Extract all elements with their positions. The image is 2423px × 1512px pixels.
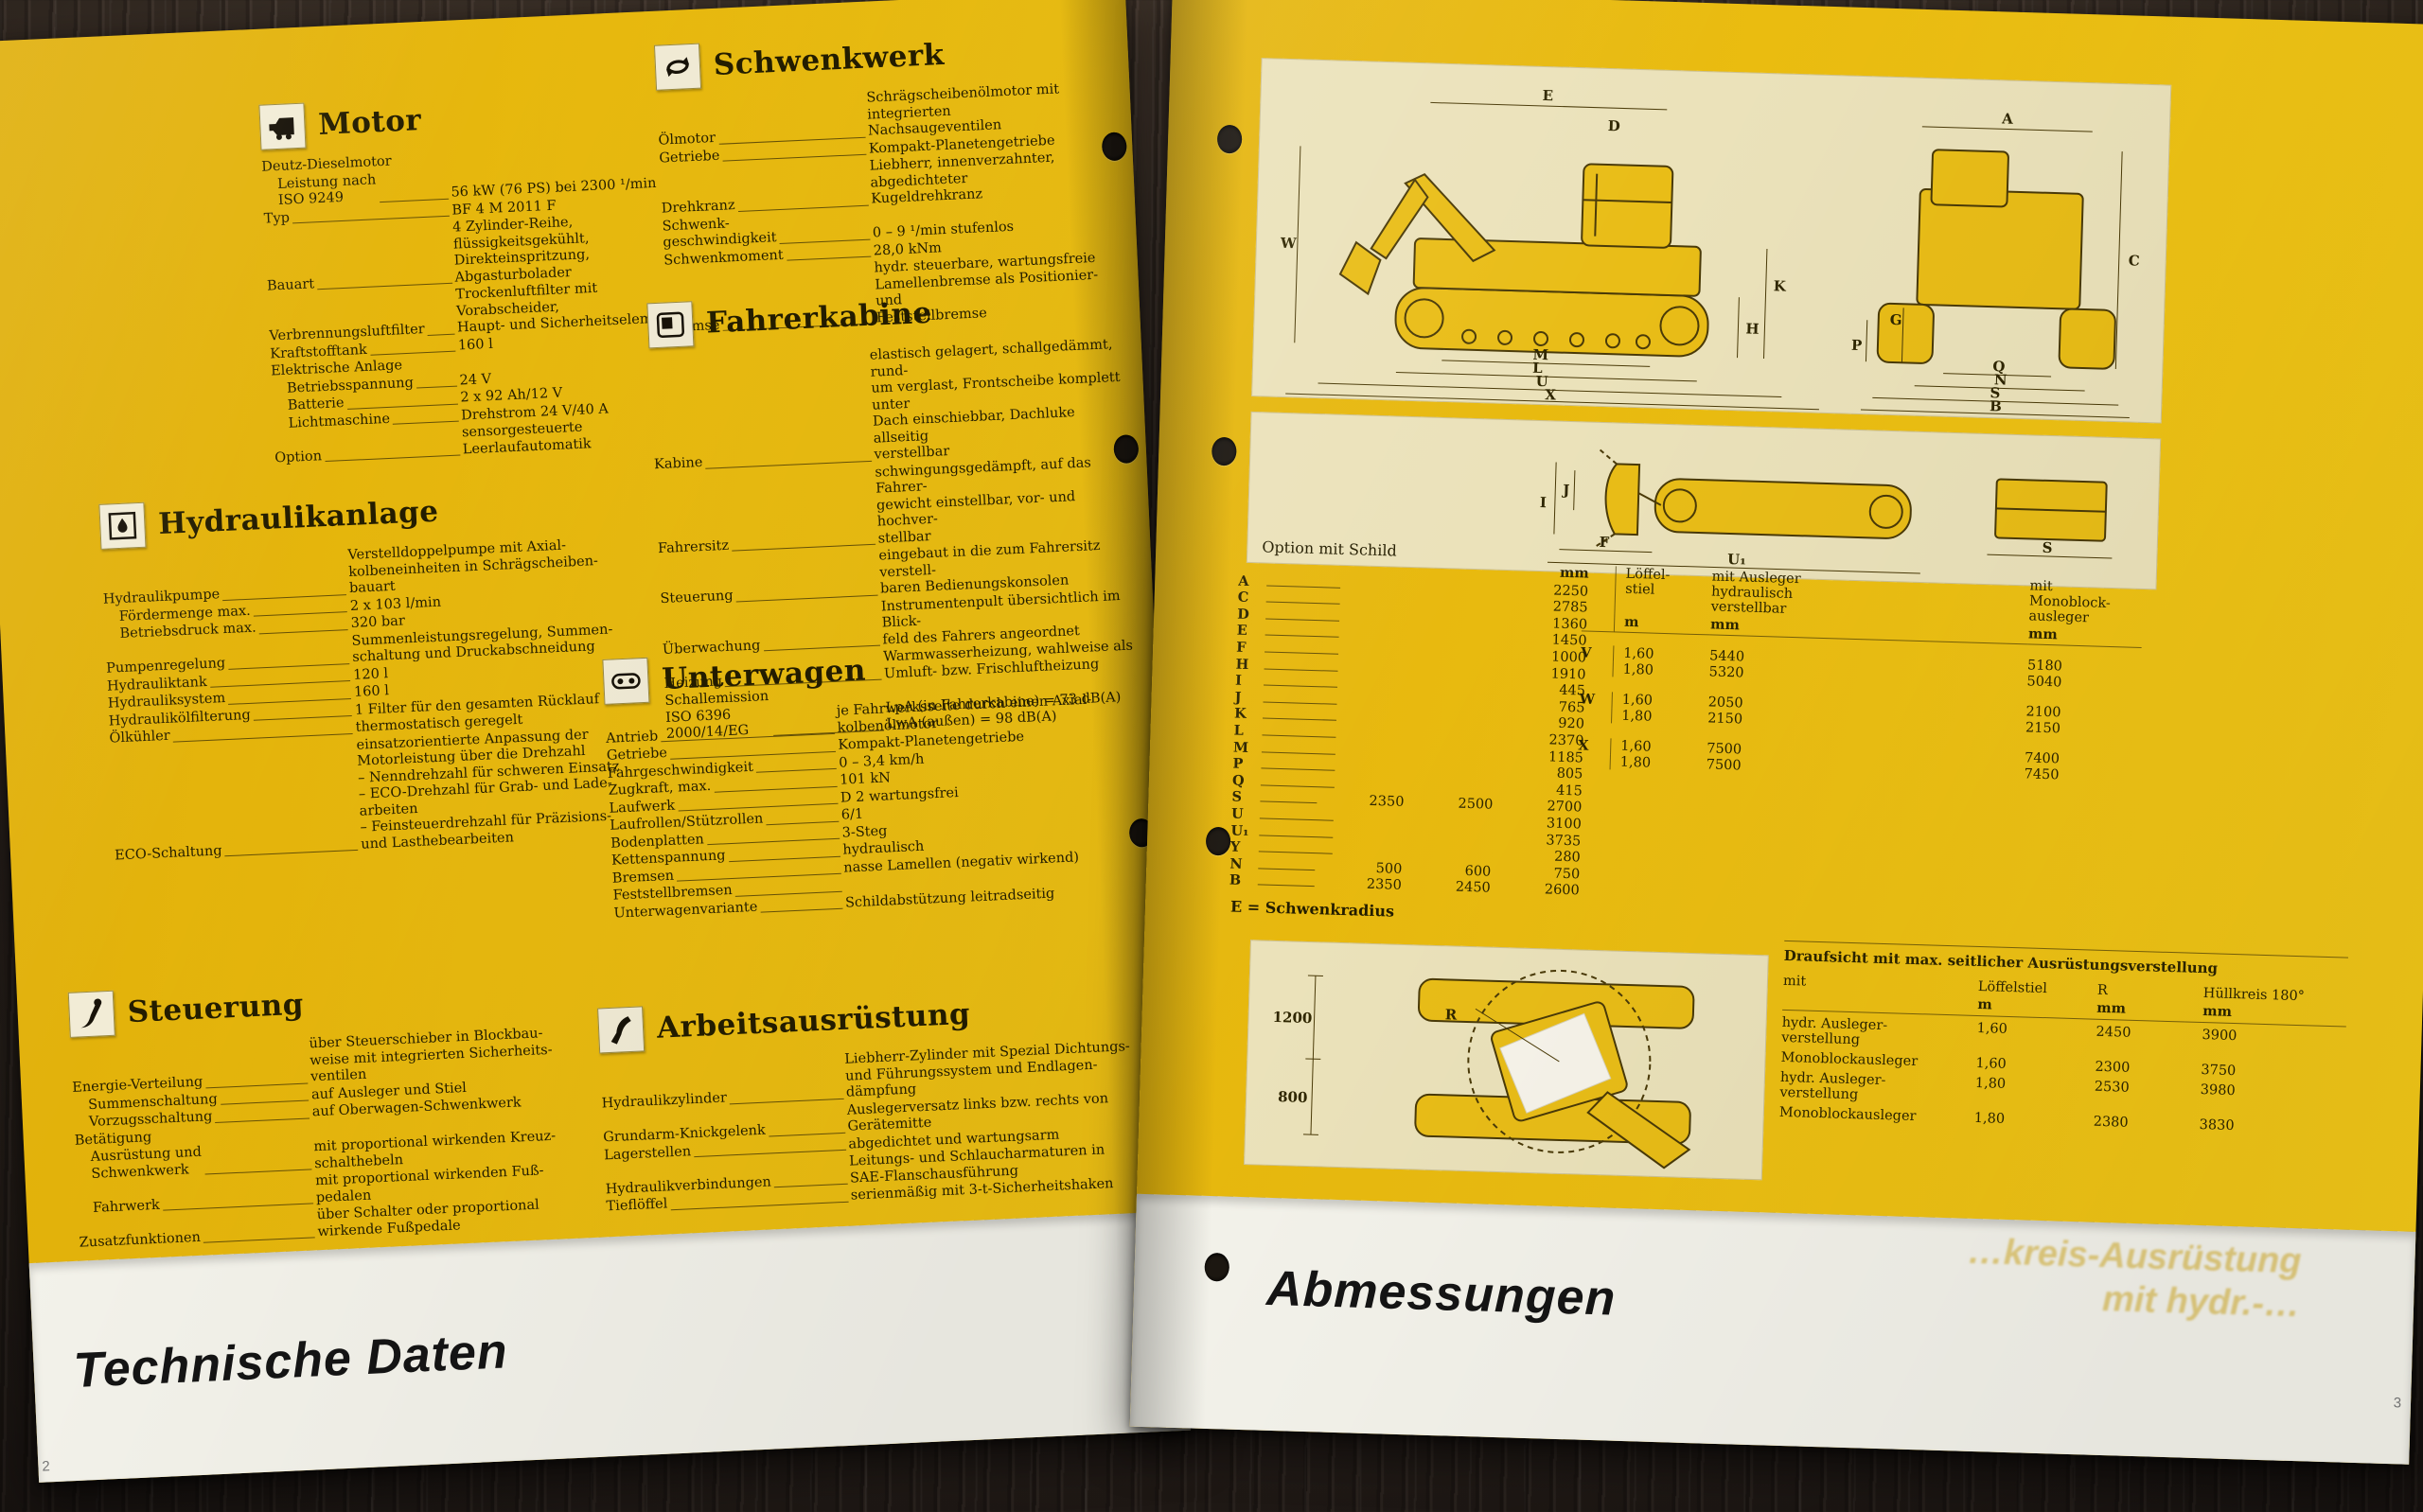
topview-table-cell: 1,60 xyxy=(1976,1016,2096,1055)
diagram-dimension-label: A xyxy=(2001,110,2014,127)
dimension-value: 750 xyxy=(1496,865,1585,883)
boom-variant-cell xyxy=(1582,612,1615,632)
spec-label: ECO-Schaltung xyxy=(115,843,222,865)
leader-line xyxy=(769,1132,845,1136)
spec-label: Tieflöffel xyxy=(606,1196,668,1215)
dimension-letter: N xyxy=(1229,855,1258,872)
leader-line xyxy=(225,850,359,856)
dimension-letter: Y xyxy=(1230,839,1259,856)
dimension-value: 2370 xyxy=(1500,731,1589,749)
leader-line xyxy=(1258,885,1315,888)
section-arbeitsausruestung: ArbeitsausrüstungHydraulikzylinderLiebhe… xyxy=(597,984,1138,1216)
leader-line xyxy=(1263,718,1336,721)
spec-label: Zusatzfunktionen xyxy=(79,1229,201,1251)
leader-line xyxy=(380,198,449,202)
swing-arrows-icon xyxy=(654,44,701,91)
leader-line xyxy=(1265,618,1339,621)
dimension-letter: I xyxy=(1235,673,1264,690)
diagram-dimension-label: D xyxy=(1607,117,1620,134)
diagram-dimension-label: E xyxy=(1542,87,1553,104)
topview-table-cell: 3980 xyxy=(2200,1078,2344,1116)
diagram-dimension-label: H xyxy=(1745,320,1760,337)
leader-line xyxy=(259,629,348,634)
dimension-value: 500 xyxy=(1318,859,1407,877)
spec-label: Getriebe xyxy=(607,746,668,765)
leader-line xyxy=(761,908,843,913)
left-page: MotorDeutz-DieselmotorLeistung nach ISO … xyxy=(0,0,1191,1483)
track-link-icon xyxy=(602,658,649,705)
dimensions-diagram-box: EDWHKMLUXACGPQNSB xyxy=(1251,58,2171,423)
dimension-value: 2350 xyxy=(1320,793,1409,811)
spec-label: Leistung nach ISO 9249 xyxy=(262,172,378,210)
diagram-dimension-label: C xyxy=(2128,252,2140,269)
leader-line xyxy=(671,1201,849,1210)
dimension-value: 1450 xyxy=(1503,631,1592,649)
diagram-dimension-label: W xyxy=(1280,235,1299,253)
leader-line xyxy=(221,1099,309,1104)
spec-row: ECO-Schaltungeinsatzorientierte Anpassun… xyxy=(110,724,650,864)
engine-icon xyxy=(258,103,306,150)
diagram-dimension-label: F xyxy=(1599,534,1610,551)
leader-line xyxy=(1260,801,1317,804)
dimension-value: 415 xyxy=(1499,782,1588,800)
leader-line xyxy=(1264,685,1337,688)
leader-line xyxy=(774,1184,847,1188)
topview-table-cell: 1,80 xyxy=(1974,1106,2095,1130)
leader-line xyxy=(780,238,870,243)
dimension-value: 445 xyxy=(1502,681,1591,699)
dimension-letter: F xyxy=(1236,640,1265,657)
right-footer-band: …kreis-Ausrüstung mit hydr.-… Abmessunge… xyxy=(1130,1194,2416,1465)
leader-line xyxy=(1259,835,1333,837)
leader-line xyxy=(1260,818,1334,820)
spec-value: schwingungsgedämpft, auf das Fahrer- gew… xyxy=(875,453,1137,548)
right-page: EDWHKMLUXACGPQNSB JIFU₁S Option mit Schi… xyxy=(1130,0,2423,1465)
topview-table-cell: 2450 xyxy=(2096,1020,2202,1058)
topview-table-cell: 2530 xyxy=(2094,1075,2201,1113)
boom-variant-cell: m xyxy=(1614,613,1711,635)
leader-line xyxy=(1261,768,1335,771)
section-title: Hydraulikanlage xyxy=(158,495,440,541)
dimension-letter: Q xyxy=(1232,772,1261,789)
dimension-letter: E xyxy=(1236,623,1265,640)
topview-table: Draufsicht mit max. seitlicher Ausrüstun… xyxy=(1779,941,2348,1137)
page-number-right: 3 xyxy=(2393,1395,2401,1411)
boom-variant-table: Löffel- stielmit Ausleger hydraulisch ve… xyxy=(1578,565,2151,785)
boom-variant-cell: X xyxy=(1578,737,1610,754)
leader-line xyxy=(325,455,460,462)
diagram-dimension-label: U₁ xyxy=(1727,551,1746,569)
showthrough-text: …kreis-Ausrüstung mit hydr.-… xyxy=(1524,1217,2302,1327)
spec-label: Batterie xyxy=(272,396,344,415)
leader-line xyxy=(1266,602,1340,605)
section-title: Fahrerkabine xyxy=(706,296,933,341)
section-unterwagen: UnterwagenAntriebje Fahrwerksseite durch… xyxy=(602,637,1117,923)
dimension-letter: L xyxy=(1233,722,1262,739)
diagram-dimension-label: G xyxy=(1890,311,1902,328)
dimension-letter: J xyxy=(1234,689,1263,706)
boom-variant-cell xyxy=(1578,753,1610,769)
boom-variant-cell xyxy=(1582,565,1615,613)
diagram-dimension-label: B xyxy=(1990,397,2002,414)
dimension-letter: H xyxy=(1235,656,1264,673)
leader-line xyxy=(1258,868,1315,870)
dimension-value: 2500 xyxy=(1409,795,1498,813)
dimension-letter: S xyxy=(1231,789,1260,806)
leader-line xyxy=(1265,668,1338,671)
dimension-value: 2450 xyxy=(1407,878,1496,896)
spec-label: Antrieb xyxy=(606,729,659,747)
leader-line xyxy=(1262,751,1335,754)
spec-row: Kabineelastisch gelagert, schallgedämmt,… xyxy=(649,336,1133,473)
topview-table-cell: 3900 xyxy=(2202,1023,2346,1062)
dimension-letter: D xyxy=(1237,606,1265,623)
dimension-value: 920 xyxy=(1501,714,1590,732)
page-heading-right: Abmessungen xyxy=(1265,1260,1617,1327)
topview-table-cell: 3830 xyxy=(2199,1113,2343,1137)
boom-icon xyxy=(597,1006,645,1053)
spec-label: Ölmotor xyxy=(658,131,716,149)
leader-line xyxy=(756,768,837,773)
excavator-side-rear-diagram: EDWHKMLUXACGPQNSB xyxy=(1251,58,2171,423)
topview-table-cell: hydr. Ausleger- verstellung xyxy=(1779,1065,1975,1106)
cab-icon xyxy=(646,301,694,348)
dimension-value: 765 xyxy=(1501,698,1590,716)
spec-label: Fahrersitz xyxy=(658,537,730,557)
punch-hole xyxy=(1206,827,1231,856)
leader-line xyxy=(787,256,871,261)
dimension-value: 805 xyxy=(1499,765,1588,782)
diagram-dimension-label: X xyxy=(1545,386,1557,403)
section-hydraulikanlage: HydraulikanlageHydraulikpumpeVerstelldop… xyxy=(98,480,650,864)
dimension-value: 3100 xyxy=(1498,815,1587,833)
spec-label: Schwenk- geschwindigkeit xyxy=(662,214,777,252)
dimension-value: 280 xyxy=(1497,848,1586,866)
dimension-value: 1910 xyxy=(1502,665,1591,683)
dimension-table: mm A2250C2785D1360E1450F1000H1910I445J76… xyxy=(1229,555,1595,899)
boom-variant-cell xyxy=(1580,660,1612,677)
section-title: Motor xyxy=(318,103,422,142)
dimension-value: 600 xyxy=(1407,862,1496,880)
boom-variant-cell: 1,80 xyxy=(1610,754,1707,772)
diagram-dimension-label: 1200 xyxy=(1272,1009,1312,1027)
dimension-value: 1000 xyxy=(1503,648,1592,666)
topview-diagram-box: 1200800R xyxy=(1244,940,1769,1180)
photo-background: MotorDeutz-DieselmotorLeistung nach ISO … xyxy=(0,0,2423,1512)
spec-label: Steuerung xyxy=(660,589,734,608)
boom-variant-cell: mm xyxy=(2028,625,2143,648)
page-heading-left: Technische Daten xyxy=(73,1323,509,1399)
leader-line xyxy=(203,1237,315,1242)
diagram-dimension-label: J xyxy=(1561,482,1570,499)
section-motor: MotorDeutz-DieselmotorLeistung nach ISO … xyxy=(258,86,683,466)
leader-line xyxy=(1262,734,1335,737)
boom-variant-cell xyxy=(1579,707,1611,723)
leader-line xyxy=(393,421,458,425)
dimension-value: 2600 xyxy=(1496,881,1585,899)
page-number-left: 2 xyxy=(42,1458,50,1474)
leader-line xyxy=(1266,585,1340,588)
leader-line xyxy=(767,820,840,824)
leader-line xyxy=(1265,635,1339,638)
section-title: Schwenkwerk xyxy=(713,38,945,82)
diagram-dimension-label: S xyxy=(2042,539,2052,556)
spec-label: Ausrüstung und Schwenkwerk xyxy=(75,1145,203,1184)
dimension-letter: A xyxy=(1238,572,1266,589)
dimension-letter: U₁ xyxy=(1230,822,1259,839)
hydraulic-pump-icon xyxy=(98,502,146,550)
diagram-dimension-label: P xyxy=(1851,337,1863,354)
punch-hole xyxy=(1211,437,1237,466)
dimension-value: 1185 xyxy=(1500,747,1589,765)
spec-label: Option xyxy=(274,448,322,467)
spec-label: Bremsen xyxy=(611,868,674,887)
section-title: Steuerung xyxy=(127,988,305,1029)
spec-label: Laufwerk xyxy=(609,798,675,818)
spec-label: Getriebe xyxy=(659,148,720,167)
swing-radius-note: E = Schwenkradius xyxy=(1230,898,1395,921)
boom-variant-cell: Löffel- stiel xyxy=(1614,566,1711,616)
boom-variant-cell: V xyxy=(1581,644,1613,661)
spec-label: Bauart xyxy=(267,276,315,295)
diagram-dimension-label: K xyxy=(1774,277,1788,294)
leader-line xyxy=(1259,851,1333,853)
dimension-letter: B xyxy=(1229,872,1258,889)
leader-line xyxy=(416,386,457,389)
dimension-value: 2250 xyxy=(1505,582,1594,600)
control-lever-icon xyxy=(68,991,115,1038)
diagram-dimension-label: I xyxy=(1540,494,1548,511)
dimension-value: 2350 xyxy=(1318,876,1407,894)
topview-table-cell: 1,80 xyxy=(1974,1071,2095,1110)
boom-variant-cell: W xyxy=(1579,691,1611,708)
boom-variant-cell: 1,80 xyxy=(1612,661,1708,679)
leader-line xyxy=(1261,784,1335,787)
dimension-value: 3735 xyxy=(1497,831,1586,849)
spec-value: 4 Zylinder-Reihe, flüssigkeitsgekühlt, D… xyxy=(452,210,676,287)
dimension-letter: C xyxy=(1238,589,1266,607)
boom-variant-cell: 2150 xyxy=(2025,720,2139,739)
boom-variant-cell: mit Monoblock- ausleger xyxy=(2028,578,2143,629)
leader-line xyxy=(1263,701,1336,704)
dimension-value: 1360 xyxy=(1504,615,1593,633)
diagram-dimension-label: R xyxy=(1445,1006,1459,1023)
spec-label: Kabine xyxy=(654,455,703,474)
spec-label: Ölkühler xyxy=(109,729,170,747)
dimension-value: 2785 xyxy=(1504,598,1593,616)
dimension-value: 2700 xyxy=(1498,798,1587,816)
section-steuerung: SteuerungEnergie-Verteilungüber Steuersc… xyxy=(68,969,598,1252)
topview-table-cell: 2380 xyxy=(2093,1110,2200,1133)
boom-variant-cell: 1,80 xyxy=(1611,708,1707,726)
leader-line xyxy=(1265,651,1338,654)
section-title: Arbeitsausrüstung xyxy=(656,997,971,1046)
boom-variant-cell: 7450 xyxy=(2024,766,2137,785)
spec-label: Typ xyxy=(263,210,290,228)
dimension-letter: U xyxy=(1231,805,1260,822)
dimension-letter: M xyxy=(1233,739,1262,756)
spec-value: elastisch gelagert, schallgedämmt, rund-… xyxy=(869,336,1133,464)
section-title: Unterwagen xyxy=(662,653,867,696)
dimension-letter: P xyxy=(1232,756,1261,773)
spec-value: Trockenluftfilter mit Vorabscheider, Hau… xyxy=(455,277,678,337)
topview-diagram: 1200800R xyxy=(1244,940,1769,1180)
spec-label: Drehkranz xyxy=(661,198,735,218)
dimension-letter: K xyxy=(1234,706,1263,723)
spec-label: Betätigung xyxy=(74,1130,151,1150)
leader-line xyxy=(428,333,454,335)
diagram-dimension-label: 800 xyxy=(1278,1088,1308,1106)
boom-variant-cell: 5040 xyxy=(2026,674,2140,693)
punch-hole xyxy=(1217,125,1243,154)
topview-table-cell: hydr. Ausleger- verstellung xyxy=(1781,1011,1977,1051)
leader-line xyxy=(370,351,455,356)
topview-table-cell: mm xyxy=(2096,998,2203,1023)
